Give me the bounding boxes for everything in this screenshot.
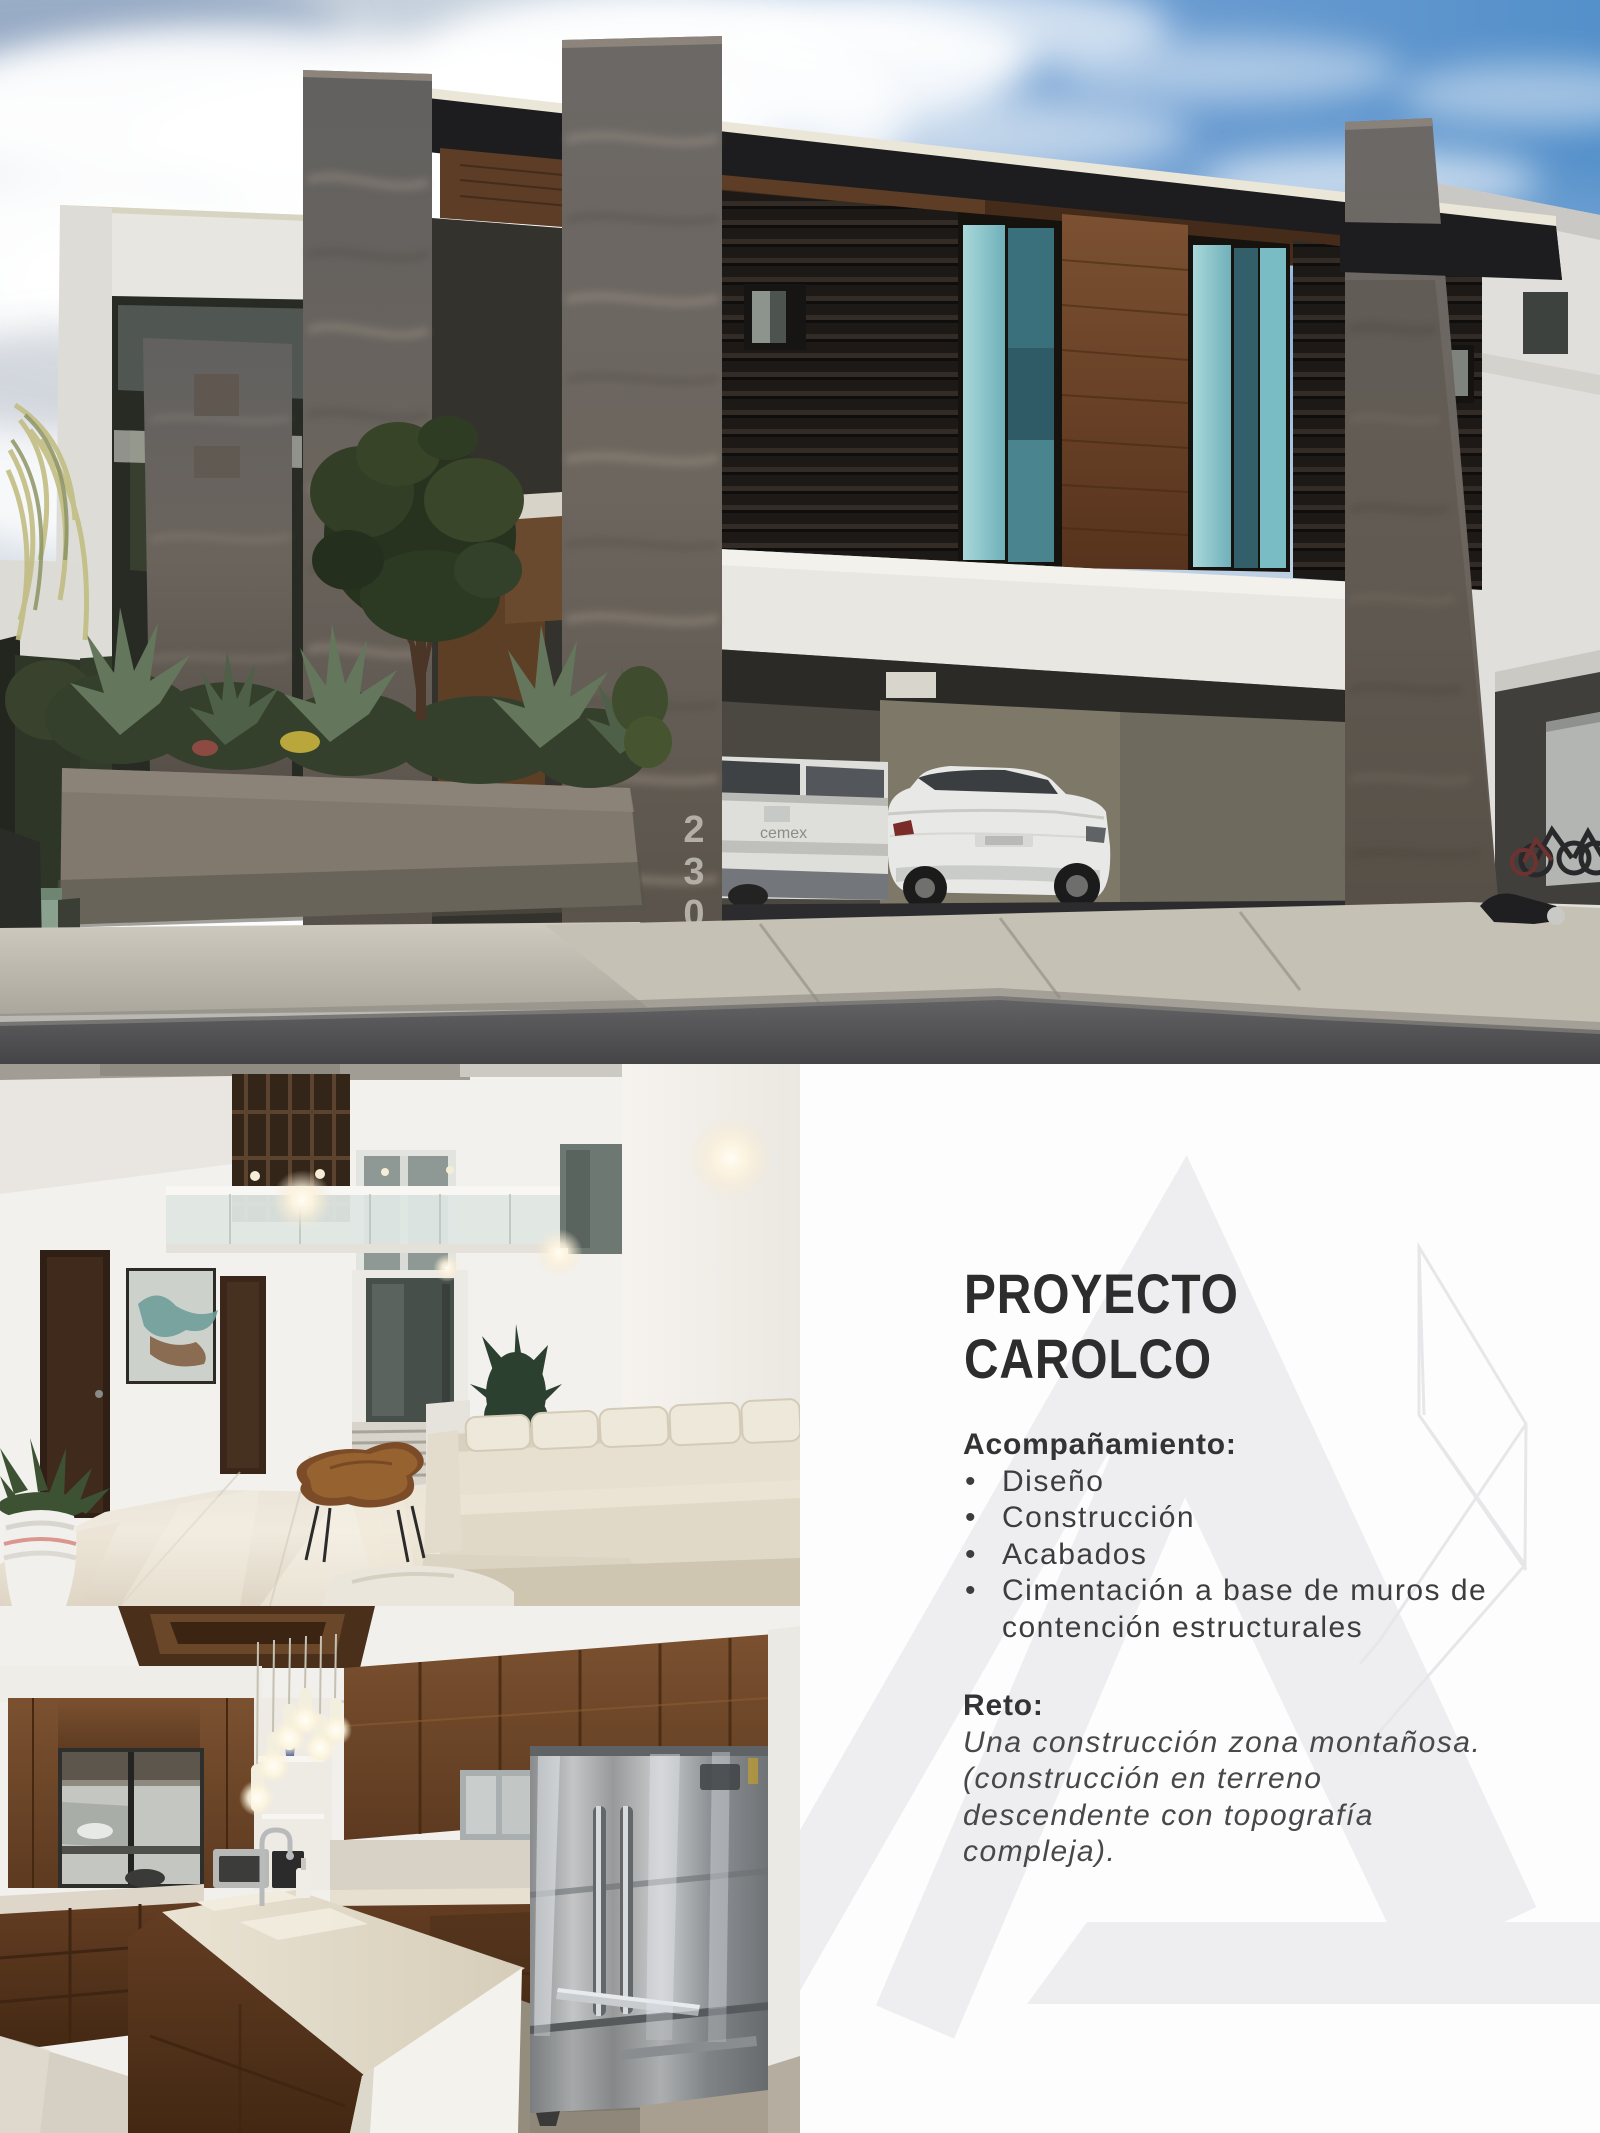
svg-text:2: 2: [683, 809, 704, 851]
svg-text:cemex: cemex: [760, 825, 807, 842]
svg-text:3: 3: [683, 851, 704, 893]
